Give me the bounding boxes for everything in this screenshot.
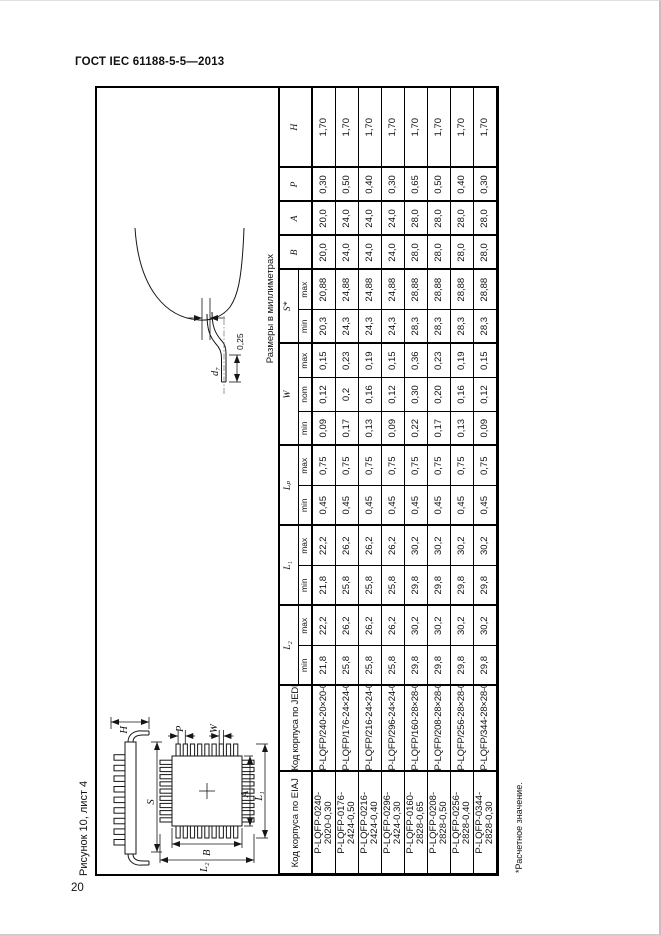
cell-w_min: 0,09 (381, 411, 404, 445)
table-row: P-LQFP-0296-2424-0,30P-LQFP/296-24×24-0,… (381, 87, 404, 873)
cell-w_max: 0,15 (312, 343, 335, 377)
col-header-jedec: Код корпуса по JEDEC (279, 686, 312, 772)
cell-s_min: 20,3 (312, 309, 335, 343)
cell-lp_max: 0,75 (358, 445, 381, 485)
cell-w_max: 0,19 (450, 343, 473, 377)
col-header-p: P (279, 167, 312, 201)
cell-p: 0,50 (427, 167, 450, 201)
dim-label-w: W (209, 723, 220, 733)
cell-h: 1,70 (450, 87, 473, 167)
cell-w_max: 0,15 (381, 343, 404, 377)
col-header-h: H (279, 87, 312, 167)
col-header-l1: L₁ (279, 526, 298, 606)
cell-l2_min: 29,8 (427, 646, 450, 686)
cell-lp_min: 0,45 (335, 486, 358, 526)
cell-l2_max: 30,2 (450, 606, 473, 646)
cell-eiaj-code: P-LQFP-0344-2828-0,30 (473, 772, 496, 874)
cell-l2_max: 26,2 (358, 606, 381, 646)
cell-w_nom: 0,12 (381, 377, 404, 411)
package-dimensions-table: Код корпуса по EIAJ Код корпуса по JEDEC… (278, 87, 497, 874)
cell-jedec-code: P-LQFP/296-24×24-0,30 (381, 686, 404, 772)
document-header: ГОСТ IEC 61188-5-5—2013 (75, 56, 224, 68)
subheader-l2-max: max (298, 606, 312, 646)
figure-table-frame: S H (95, 86, 499, 876)
side-view-drawing: S H (111, 717, 162, 865)
table-header: Код корпуса по EIAJ Код корпуса по JEDEC… (279, 87, 312, 873)
cell-p: 0,30 (473, 167, 496, 201)
col-header-w: W (279, 343, 298, 445)
cell-s_max: 24,88 (335, 269, 358, 309)
cell-eiaj-code: P-LQFP-0296-2424-0,30 (381, 772, 404, 874)
cell-s_min: 24,3 (335, 309, 358, 343)
cell-jedec-code: P-LQFP/216-24×24-0,40 (358, 686, 381, 772)
cell-lp_max: 0,75 (335, 445, 358, 485)
cell-w_max: 0,19 (358, 343, 381, 377)
cell-s_max: 24,88 (381, 269, 404, 309)
col-header-lp: Lₚ (279, 445, 298, 525)
cell-l1_min: 25,8 (381, 566, 404, 606)
subheader-l2-min: min (298, 646, 312, 686)
cell-l1_max: 22,2 (312, 526, 335, 566)
cell-b: 28,0 (450, 235, 473, 269)
dim-label-b: B (202, 849, 213, 856)
cell-w_max: 0,23 (335, 343, 358, 377)
subheader-s-max: max (298, 269, 312, 309)
cell-lp_min: 0,45 (473, 486, 496, 526)
cell-w_min: 0,22 (404, 411, 427, 445)
cell-l2_max: 26,2 (381, 606, 404, 646)
cell-b: 28,0 (427, 235, 450, 269)
cell-w_min: 0,17 (335, 411, 358, 445)
table-row: P-LQFP-0240-2020-0,30P-LQFP/240-20×20-0,… (312, 87, 335, 873)
cell-w_min: 0,09 (473, 411, 496, 445)
col-header-s: S* (279, 269, 298, 343)
cell-a: 24,0 (381, 201, 404, 235)
cell-lp_min: 0,45 (312, 486, 335, 526)
cell-lp_min: 0,45 (358, 486, 381, 526)
cell-a: 24,0 (335, 201, 358, 235)
cell-l2_min: 29,8 (473, 646, 496, 686)
cell-p: 0,30 (312, 167, 335, 201)
table-row: P-LQFP-0160-2828-0,65P-LQFP/160-28×28-0,… (404, 87, 427, 873)
col-header-l2: L₂ (279, 606, 298, 686)
cell-lp_max: 0,75 (473, 445, 496, 485)
cell-l2_min: 25,8 (358, 646, 381, 686)
cell-a: 28,0 (427, 201, 450, 235)
cell-lp_min: 0,45 (450, 486, 473, 526)
cell-eiaj-code: P-LQFP-0256-2828-0,40 (450, 772, 473, 874)
dim-label-p: P (175, 725, 186, 733)
cell-w_max: 0,15 (473, 343, 496, 377)
cell-b: 24,0 (358, 235, 381, 269)
cell-lp_min: 0,45 (427, 486, 450, 526)
table-row: P-LQFP-0216-2424-0,40P-LQFP/216-24×24-0,… (358, 87, 381, 873)
cell-p: 0,50 (335, 167, 358, 201)
page-number: 20 (71, 882, 84, 894)
cell-w_min: 0,09 (312, 411, 335, 445)
cell-l1_min: 21,8 (312, 566, 335, 606)
cell-h: 1,70 (473, 87, 496, 167)
cell-p: 0,65 (404, 167, 427, 201)
cell-s_max: 20,88 (312, 269, 335, 309)
cell-lp_max: 0,75 (312, 445, 335, 485)
cell-w_nom: 0,16 (450, 377, 473, 411)
cell-l2_max: 30,2 (427, 606, 450, 646)
cell-s_max: 28,88 (404, 269, 427, 309)
cell-l2_max: 22,2 (312, 606, 335, 646)
cell-w_nom: 0,12 (312, 377, 335, 411)
dim-label-h: H (119, 725, 130, 735)
cell-l2_max: 30,2 (473, 606, 496, 646)
subheader-w-nom: nom (298, 377, 312, 411)
w-dimension: W (209, 723, 234, 744)
cell-eiaj-code: P-LQFP-0160-2828-0,65 (404, 772, 427, 874)
subheader-w-min: min (298, 411, 312, 445)
cell-s_max: 28,88 (427, 269, 450, 309)
cell-l1_max: 26,2 (381, 526, 404, 566)
cell-s_max: 24,88 (358, 269, 381, 309)
dim-label-l1: L₁ (254, 791, 265, 802)
cell-jedec-code: P-LQFP/256-28×28-0,40 (450, 686, 473, 772)
subheader-w-max: max (298, 343, 312, 377)
table-row: P-LQFP-0344-2828-0,30P-LQFP/344-28×28-0,… (473, 87, 496, 873)
subheader-lp-max: max (298, 445, 312, 485)
cell-l1_max: 30,2 (450, 526, 473, 566)
cell-l1_min: 29,8 (450, 566, 473, 606)
table-footnote: *Расчетное значение. (514, 782, 524, 873)
cell-w_nom: 0,16 (358, 377, 381, 411)
cell-w_nom: 0,2 (335, 377, 358, 411)
package-body-detail (135, 228, 244, 320)
cell-lp_max: 0,75 (381, 445, 404, 485)
figure-area: S H (97, 88, 278, 874)
cell-w_nom: 0,20 (427, 377, 450, 411)
subheader-l1-max: max (298, 526, 312, 566)
cell-lp_min: 0,45 (404, 486, 427, 526)
figure-caption: Рисунок 10, лист 4 (78, 781, 90, 876)
cell-w_min: 0,13 (358, 411, 381, 445)
cell-a: 24,0 (358, 201, 381, 235)
cell-s_min: 24,3 (358, 309, 381, 343)
cell-lp_max: 0,75 (404, 445, 427, 485)
lead-detail-drawing: 0,25 d₇ (135, 228, 245, 394)
cell-l1_min: 29,8 (404, 566, 427, 606)
cell-l1_max: 30,2 (473, 526, 496, 566)
cell-s_max: 28,88 (473, 269, 496, 309)
cell-b: 28,0 (404, 235, 427, 269)
cell-eiaj-code: P-LQFP-0240-2020-0,30 (312, 772, 335, 874)
cell-h: 1,70 (427, 87, 450, 167)
col-header-eiaj: Код корпуса по EIAJ (279, 772, 312, 874)
subheader-lp-min: min (298, 486, 312, 526)
cell-l1_max: 26,2 (358, 526, 381, 566)
dim-label-l2: L₂ (199, 862, 210, 873)
table-row: P-LQFP-0176-2424-0,50P-LQFP/176-24×24-0,… (335, 87, 358, 873)
cell-s_min: 24,3 (381, 309, 404, 343)
cell-jedec-code: P-LQFP/208-28×28-0,50 (427, 686, 450, 772)
h-dimension: H (111, 717, 149, 735)
cell-lp_max: 0,75 (427, 445, 450, 485)
p-dimension: P (168, 725, 195, 744)
cell-h: 1,70 (381, 87, 404, 167)
cell-l1_max: 30,2 (427, 526, 450, 566)
cell-l1_max: 26,2 (335, 526, 358, 566)
cell-a: 20,0 (312, 201, 335, 235)
cell-w_min: 0,13 (450, 411, 473, 445)
cell-b: 24,0 (381, 235, 404, 269)
cell-h: 1,70 (312, 87, 335, 167)
cell-l1_min: 29,8 (473, 566, 496, 606)
cell-jedec-code: P-LQFP/176-24×24-0,50 (335, 686, 358, 772)
cell-l2_min: 29,8 (404, 646, 427, 686)
dim-label-gauge: 0,25 (235, 333, 245, 350)
dim-label-s: S (146, 799, 157, 805)
cell-l1_min: 25,8 (358, 566, 381, 606)
cell-p: 0,40 (450, 167, 473, 201)
cell-a: 28,0 (450, 201, 473, 235)
cell-w_max: 0,23 (427, 343, 450, 377)
cell-h: 1,70 (404, 87, 427, 167)
cell-b: 24,0 (335, 235, 358, 269)
lead-tabs (114, 755, 125, 845)
col-header-b: B (279, 235, 312, 269)
cell-lp_min: 0,45 (381, 486, 404, 526)
top-view-drawing: P W B (160, 723, 268, 873)
cell-h: 1,70 (335, 87, 358, 167)
table-body: P-LQFP-0240-2020-0,30P-LQFP/240-20×20-0,… (312, 87, 496, 873)
cell-eiaj-code: P-LQFP-0208-2828-0,50 (427, 772, 450, 874)
cell-eiaj-code: P-LQFP-0216-2424-0,40 (358, 772, 381, 874)
cell-l2_max: 26,2 (335, 606, 358, 646)
cell-l2_min: 25,8 (335, 646, 358, 686)
gauge-dimension: 0,25 (187, 298, 245, 350)
center-cross (199, 783, 215, 799)
cell-s_min: 28,3 (473, 309, 496, 343)
b-dimension: B (172, 828, 242, 856)
cell-lp_max: 0,75 (450, 445, 473, 485)
cell-w_min: 0,17 (427, 411, 450, 445)
cell-l2_min: 25,8 (381, 646, 404, 686)
cell-p: 0,30 (381, 167, 404, 201)
cell-w_nom: 0,12 (473, 377, 496, 411)
table-row: P-LQFP-0208-2828-0,50P-LQFP/208-28×28-0,… (427, 87, 450, 873)
cell-l1_min: 29,8 (427, 566, 450, 606)
cell-l2_min: 29,8 (450, 646, 473, 686)
cell-s_min: 28,3 (427, 309, 450, 343)
cell-l1_min: 25,8 (335, 566, 358, 606)
cell-s_min: 28,3 (450, 309, 473, 343)
col-header-a: A (279, 201, 312, 235)
dim-label-a: A (240, 790, 251, 798)
cell-a: 28,0 (473, 201, 496, 235)
cell-s_max: 28,88 (450, 269, 473, 309)
table-row: P-LQFP-0256-2828-0,40P-LQFP/256-28×28-0,… (450, 87, 473, 873)
cell-a: 28,0 (404, 201, 427, 235)
subheader-s-min: min (298, 309, 312, 343)
cell-b: 28,0 (473, 235, 496, 269)
dim-label-d7: d₇ (210, 367, 221, 376)
cell-jedec-code: P-LQFP/344-28×28-0,30 (473, 686, 496, 772)
cell-l1_max: 30,2 (404, 526, 427, 566)
cell-jedec-code: P-LQFP/240-20×20-0,30 (312, 686, 335, 772)
cell-b: 20,0 (312, 235, 335, 269)
cell-w_max: 0,36 (404, 343, 427, 377)
package-drawings: S H (97, 88, 278, 874)
cell-jedec-code: P-LQFP/160-28×28-0,65 (404, 686, 427, 772)
cell-eiaj-code: P-LQFP-0176-2424-0,50 (335, 772, 358, 874)
gull-wing-leads (128, 731, 149, 865)
document-page: ГОСТ IEC 61188-5-5—2013 20 Рисунок 10, л… (0, 0, 661, 936)
rotated-figure-block: Рисунок 10, лист 4 (78, 86, 533, 876)
package-body-side (125, 742, 136, 854)
units-note: Размеры в миллиметрах (265, 254, 276, 363)
cell-w_nom: 0,30 (404, 377, 427, 411)
cell-l2_max: 30,2 (404, 606, 427, 646)
cell-p: 0,40 (358, 167, 381, 201)
cell-s_min: 28,3 (404, 309, 427, 343)
l1-dimension: L₁ (254, 744, 268, 838)
subheader-l1-min: min (298, 566, 312, 606)
cell-h: 1,70 (358, 87, 381, 167)
cell-l2_min: 21,8 (312, 646, 335, 686)
